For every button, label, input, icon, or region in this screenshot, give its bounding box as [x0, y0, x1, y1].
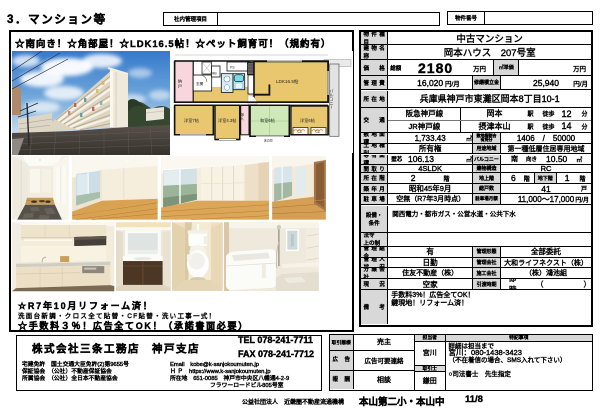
svg-text:バルコニー: バルコニー [330, 89, 335, 109]
svg-text:LDK16.5帖: LDK16.5帖 [276, 78, 299, 85]
svg-text:洋室7帖: 洋室7帖 [184, 117, 199, 124]
svg-text:床の間: 床の間 [264, 139, 273, 143]
svg-text:MB: MB [212, 72, 218, 76]
svg-text:納戸: 納戸 [178, 78, 183, 90]
svg-text:玄関: 玄関 [196, 81, 204, 86]
svg-text:CL: CL [298, 130, 303, 134]
svg-text:洋室4.3帖: 洋室4.3帖 [218, 117, 236, 124]
svg-text:CL: CL [316, 130, 321, 134]
svg-text:洋室6帖: 洋室6帖 [300, 117, 315, 124]
svg-text:PS: PS [230, 66, 235, 70]
svg-text:和室6帖: 和室6帖 [260, 117, 275, 124]
svg-text:押入: 押入 [239, 112, 244, 121]
